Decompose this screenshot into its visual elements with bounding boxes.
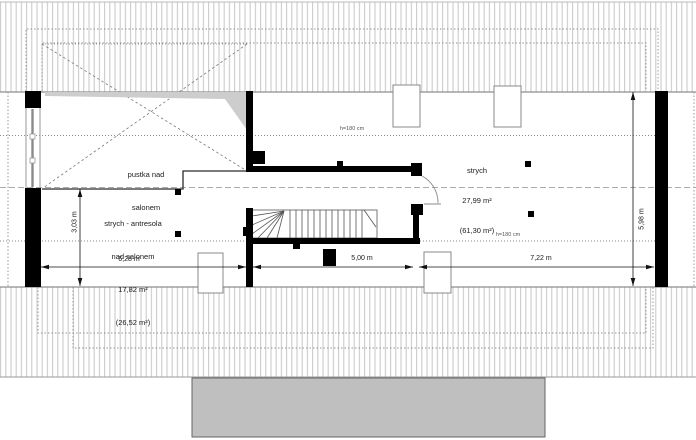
room-label-antresola: strych - antresola nad salonem 17,82 m² … [104,196,162,350]
floor-plan: pustka nad salonem strych - antresola na… [0,0,696,440]
room-label-strych-name: strych [460,166,495,176]
room-label-antresola-line1: strych - antresola [104,218,162,229]
room-label-strych: strych 27,99 m² (61,30 m²) [460,146,495,256]
dimension-label-5-00: 5,00 m [351,255,372,262]
wall-right [655,91,668,287]
dimension-label-7-22: 7,22 m [530,255,551,262]
wall-left-bottom [25,188,41,287]
door-swing [422,176,441,204]
roof-slope-wedge [45,92,247,130]
stairs [252,210,377,238]
post-right-2 [528,211,534,217]
dimension-label-3-03: 3,03 m [72,211,79,232]
post-left-2 [175,231,181,237]
post-railing [293,243,300,249]
height-note-top: h=180 cm [340,126,364,132]
railing-wall [246,238,420,244]
roof-window-bottom-right [424,252,451,293]
dimension-label-6-28: 6,28 m [118,256,139,263]
post-stair-left [243,227,253,236]
room-label-strych-area-total: (61,30 m²) [460,226,495,236]
wall-upper-horizontal [246,166,422,172]
lower-slab [192,378,545,437]
roof-window-bottom-left [198,253,223,293]
roof-window-top-left [393,85,420,127]
post-right-1 [525,161,531,167]
chimney-upper [250,151,265,164]
chimney-lower [323,249,336,266]
room-label-pustka-line1: pustka nad [128,169,165,180]
roof-hatch-top [0,2,696,92]
room-label-antresola-area: 17,82 m² [104,284,162,295]
height-note-bottom: h=180 cm [496,232,520,238]
window-left [26,108,40,188]
wall-stair-left [246,208,253,287]
door-post-bottom [411,204,423,215]
dimension-label-5-98: 5,98 m [639,208,646,229]
wall-left-top [25,91,41,108]
room-label-antresola-area-total: (26,52 m²) [104,317,162,328]
post-upper-wall [337,161,343,167]
roof-window-top-right [494,86,521,127]
room-label-strych-area: 27,99 m² [460,196,495,206]
door-post-top [411,163,422,176]
post-left-1 [175,189,181,195]
